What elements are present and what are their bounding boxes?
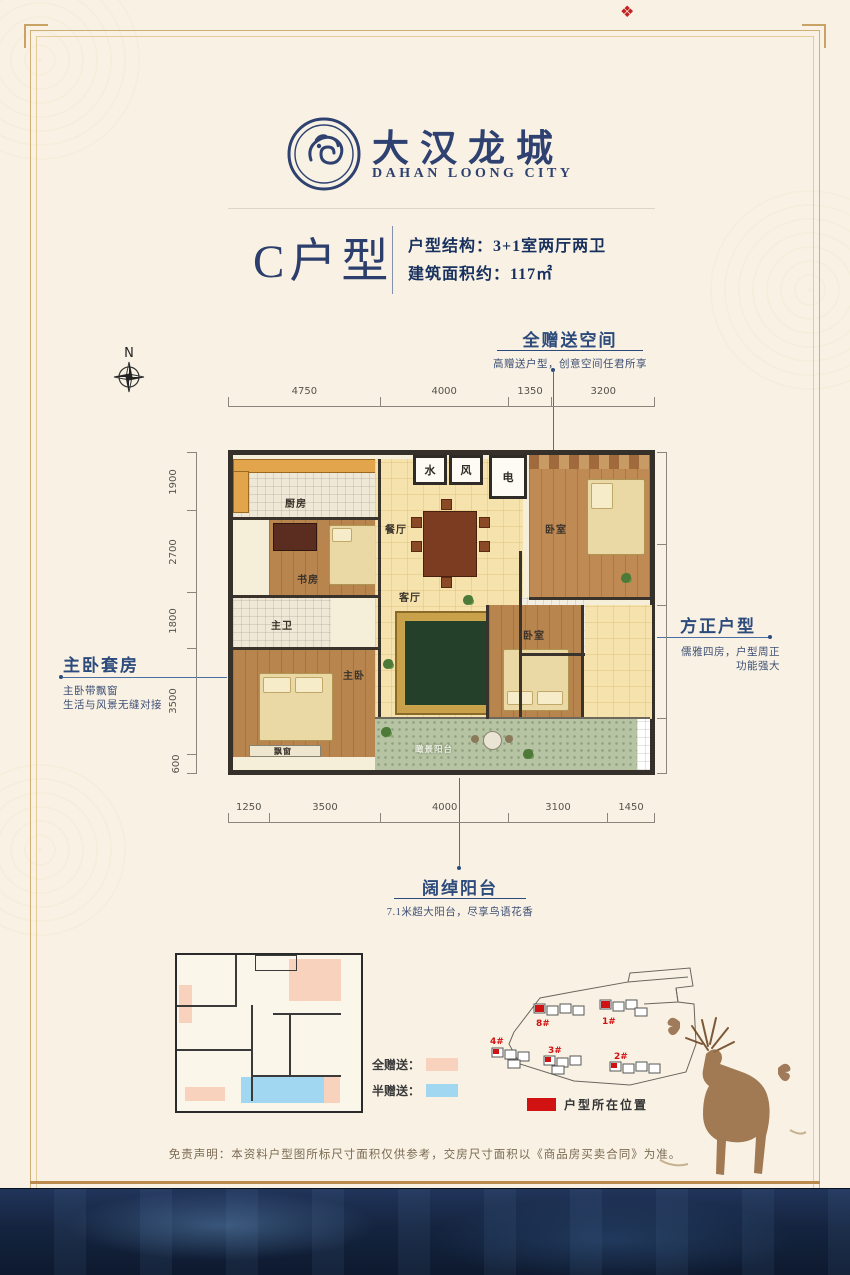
callout-suite-desc1: 主卧带飘窗 (63, 683, 118, 698)
dim-segment: 3100 (509, 813, 608, 823)
callout-gift-desc: 高赠送户型，创意空间任君所享 (460, 356, 680, 371)
dim-value: 1450 (608, 802, 654, 813)
legend-half-gift-label: 半赠送： (372, 1082, 420, 1099)
dim-segment: 1250 (228, 813, 270, 823)
room-study-label: 书房 (297, 571, 319, 586)
dim-segment: 4000 (381, 397, 509, 407)
callout-square-title: 方正户型 (662, 612, 774, 637)
dim-value: 4000 (381, 802, 508, 813)
site-legend-swatch (527, 1098, 556, 1111)
dim-value: 2700 (168, 539, 179, 564)
floorplan-poster: ❖ 大汉龙城 DAHAN LOONG CITY C户型 户型结构：3+1室两厅两… (0, 0, 850, 1275)
room-bedroom-mid-label: 卧室 (523, 627, 545, 642)
dim-segment: 600 (187, 755, 197, 774)
dim-value: 3100 (509, 802, 607, 813)
dim-left: 1900270018003500600 (182, 452, 197, 774)
dim-bottom: 12503500400031001450 (228, 808, 655, 823)
room-dining-label: 餐厅 (385, 521, 407, 536)
dim-segment: 3500 (187, 649, 197, 755)
room-master-bath-label: 主卫 (271, 617, 293, 632)
dining-table (423, 511, 477, 577)
building-label-8: 8# (536, 1019, 550, 1029)
compass: N (112, 346, 146, 398)
room-study: 书房 (269, 519, 381, 597)
floor-plan: 厨房 书房 主卫 主卧 飘窗 餐厅 客厅 (228, 450, 655, 775)
dim-value: 4750 (229, 386, 380, 397)
box-water: 水 (413, 455, 447, 485)
compass-rose-icon (113, 361, 145, 393)
room-master-bed: 主卧 飘窗 (233, 649, 381, 757)
callout-balcony-rule (394, 898, 526, 899)
room-bedroom-top: 卧室 (529, 455, 650, 597)
laundry-nook (637, 719, 650, 770)
callout-balcony-desc: 7.1米超大阳台，尽享鸟语花香 (330, 904, 590, 919)
callout-suite-title: 主卧套房 (63, 651, 139, 676)
dim-value: 4000 (381, 386, 508, 397)
dim-segment: 3200 (552, 397, 655, 407)
dim-segment: 3500 (270, 813, 382, 823)
dim-segment: 2700 (187, 511, 197, 593)
dim-value: 3500 (168, 689, 179, 714)
legend-full-gift-label: 全赠送： (372, 1056, 420, 1073)
frame-corner (24, 24, 48, 48)
legend-full-gift-swatch (426, 1058, 458, 1071)
dim-value: 600 (171, 754, 182, 773)
site-legend-label: 户型所在位置 (564, 1096, 648, 1113)
balcony: 瞰景阳台 (375, 719, 637, 770)
callout-gift-title: 全赠送空间 (470, 326, 670, 351)
room-master-bed-label: 主卧 (343, 667, 365, 682)
site-legend: 户型所在位置 (527, 1096, 648, 1113)
building-label-3: 3# (548, 1046, 562, 1056)
dim-segment: 1800 (657, 719, 667, 774)
box-water-label: 水 (425, 462, 436, 478)
legend-half-gift-swatch (426, 1084, 458, 1097)
callout-square-line (657, 637, 769, 638)
balcony-label: 瞰景阳台 (415, 743, 453, 755)
footer-image-band (0, 1188, 850, 1275)
dragon-emblem-icon (286, 116, 362, 197)
dim-value: 1250 (229, 802, 269, 813)
unit-type-title: C户型 (253, 222, 393, 291)
room-kitchen: 厨房 (233, 459, 375, 519)
footer-gold-line (30, 1181, 820, 1184)
dim-top: 4750400013503200 (228, 392, 655, 407)
dim-value: 3200 (552, 386, 654, 397)
brand-name-en: DAHAN LOONG CITY (372, 166, 573, 182)
callout-dot (457, 866, 461, 870)
dim-segment: 3000 (657, 452, 667, 545)
red-stamp-icon: ❖ (620, 2, 634, 22)
building-label-2: 2# (614, 1052, 628, 1062)
dim-segment: 2000 (657, 545, 667, 606)
box-wind: 风 (449, 455, 483, 485)
mini-full-gift-area (324, 1075, 340, 1103)
callout-gift-line (553, 371, 554, 453)
dim-segment: 4750 (228, 397, 381, 407)
dim-value: 3500 (270, 802, 381, 813)
unit-area: 建筑面积约：117㎡ (408, 260, 553, 284)
disclaimer-text: 免责声明：本资料户型图所标尺寸面积仅供参考，交房尺寸面积以《商品房买卖合同》为准… (0, 1146, 850, 1162)
callout-suite-line (63, 677, 227, 678)
room-kitchen-label: 厨房 (285, 495, 307, 510)
bay-window-label: 飘窗 (274, 746, 292, 757)
box-elec: 电 (489, 455, 527, 499)
mini-plan (175, 953, 363, 1113)
box-elec-label: 电 (503, 469, 514, 485)
legend-half-gift: 半赠送： (372, 1082, 458, 1099)
compass-north-label: N (112, 346, 146, 361)
room-living-label: 客厅 (399, 589, 421, 604)
building-label-4: 4# (490, 1037, 504, 1047)
dim-segment: 4000 (381, 813, 509, 823)
callout-dot (768, 635, 772, 639)
dim-segment: 1800 (187, 593, 197, 648)
dim-value: 1350 (509, 386, 552, 397)
dim-segment: 1900 (187, 452, 197, 511)
mini-half-gift-area (241, 1077, 324, 1103)
unit-structure: 户型结构：3+1室两厅两卫 (408, 232, 606, 256)
title-rule (228, 208, 655, 209)
dim-value: 1900 (168, 469, 179, 494)
callout-gift-rule (497, 350, 643, 351)
frame-corner (802, 24, 826, 48)
room-master-bath: 主卫 (233, 597, 331, 649)
room-bedroom-top-label: 卧室 (545, 521, 567, 536)
title-divider (392, 226, 393, 294)
dim-value: 1800 (168, 608, 179, 633)
building-label-1: 1# (602, 1017, 616, 1027)
room-bedroom-mid: 卧室 (489, 605, 581, 719)
mini-full-gift-area (179, 985, 192, 1023)
mini-full-gift-area (185, 1087, 225, 1101)
callout-suite-desc2: 生活与风景无缝对接 (63, 697, 162, 712)
dim-segment: 3700 (657, 606, 667, 719)
dim-segment: 1350 (509, 397, 553, 407)
callout-balcony-title: 阔绰阳台 (360, 874, 560, 899)
dim-segment: 1450 (608, 813, 655, 823)
bay-window: 飘窗 (249, 745, 321, 757)
hall-area-right (581, 605, 652, 719)
box-wind-label: 风 (461, 462, 472, 478)
brand-name-cn: 大汉龙城 (372, 118, 564, 172)
deer-illustration (650, 1010, 815, 1190)
legend-full-gift: 全赠送： (372, 1056, 458, 1073)
